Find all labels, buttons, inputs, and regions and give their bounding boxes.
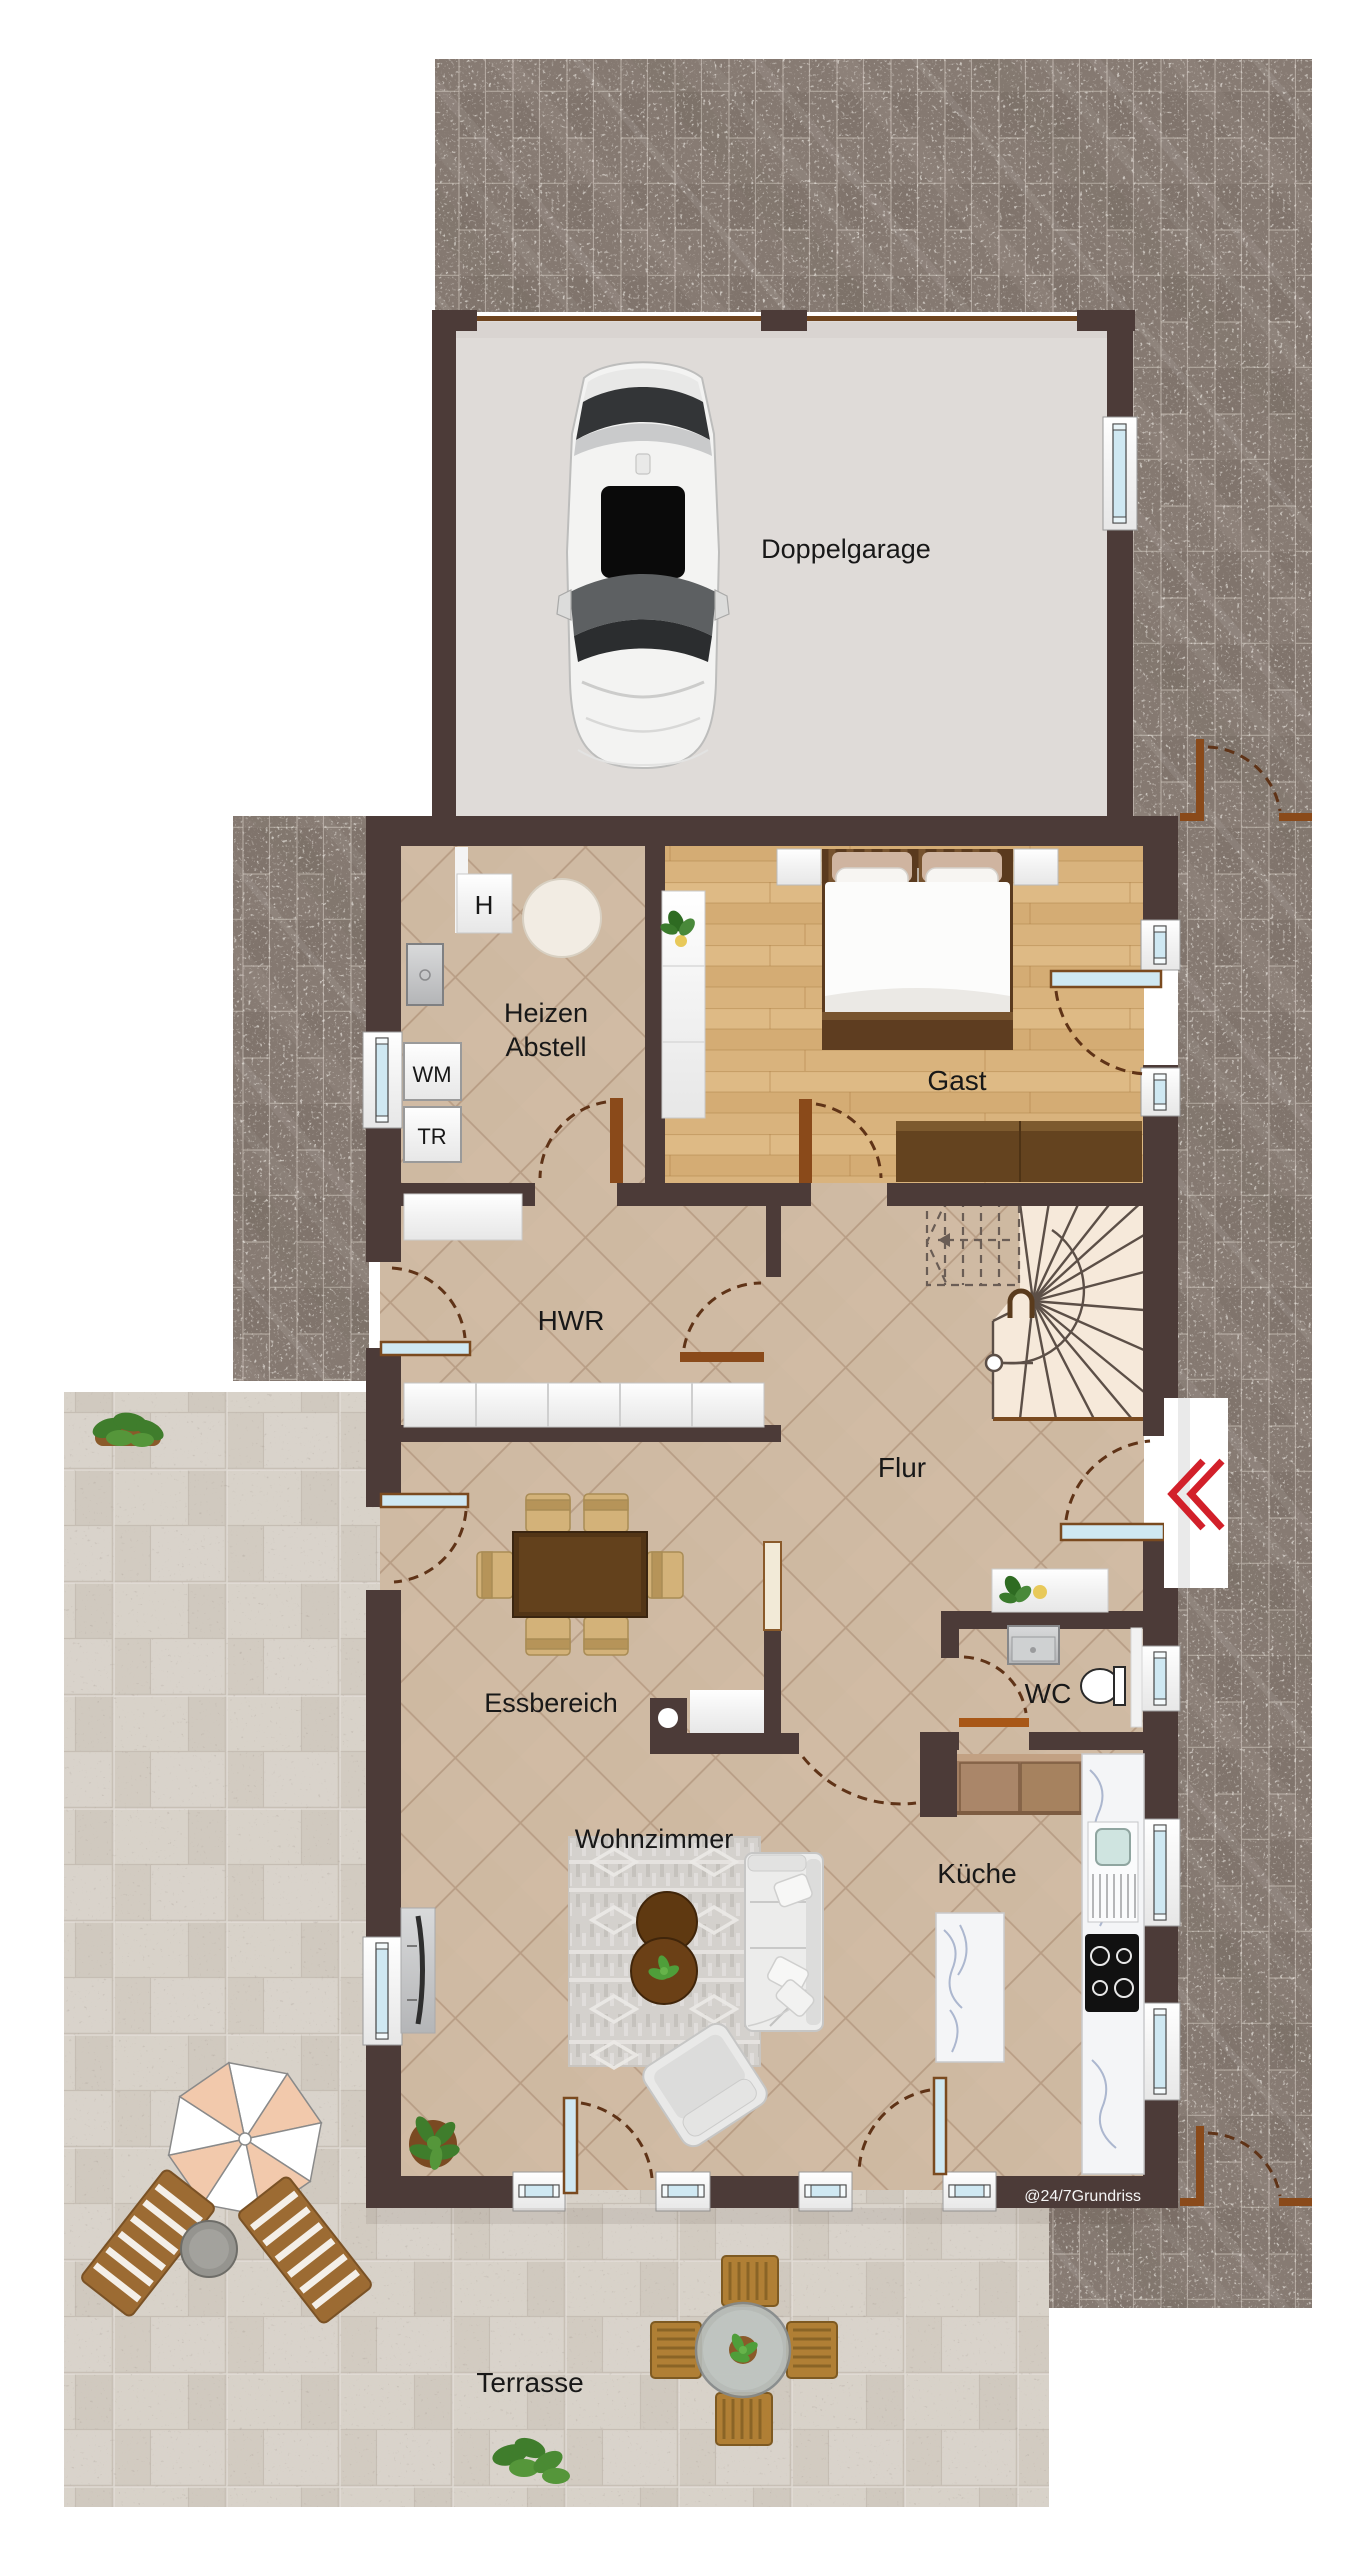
svg-text:WC: WC: [1025, 1678, 1072, 1709]
svg-text:HWR: HWR: [538, 1305, 605, 1336]
svg-text:WM: WM: [412, 1062, 451, 1087]
svg-text:Doppelgarage: Doppelgarage: [761, 534, 931, 564]
svg-text:TR: TR: [417, 1124, 446, 1149]
svg-text:Heizen: Heizen: [504, 998, 588, 1028]
svg-text:Küche: Küche: [937, 1858, 1016, 1889]
svg-text:Wohnzimmer: Wohnzimmer: [575, 1824, 734, 1854]
svg-text:@24/7Grundriss: @24/7Grundriss: [1024, 2188, 1141, 2205]
svg-text:Gast: Gast: [927, 1065, 986, 1096]
svg-text:Terrasse: Terrasse: [476, 2367, 583, 2398]
svg-text:H: H: [475, 890, 494, 920]
svg-text:Flur: Flur: [878, 1452, 926, 1483]
svg-text:Abstell: Abstell: [505, 1032, 586, 1062]
svg-text:Essbereich: Essbereich: [484, 1688, 618, 1718]
